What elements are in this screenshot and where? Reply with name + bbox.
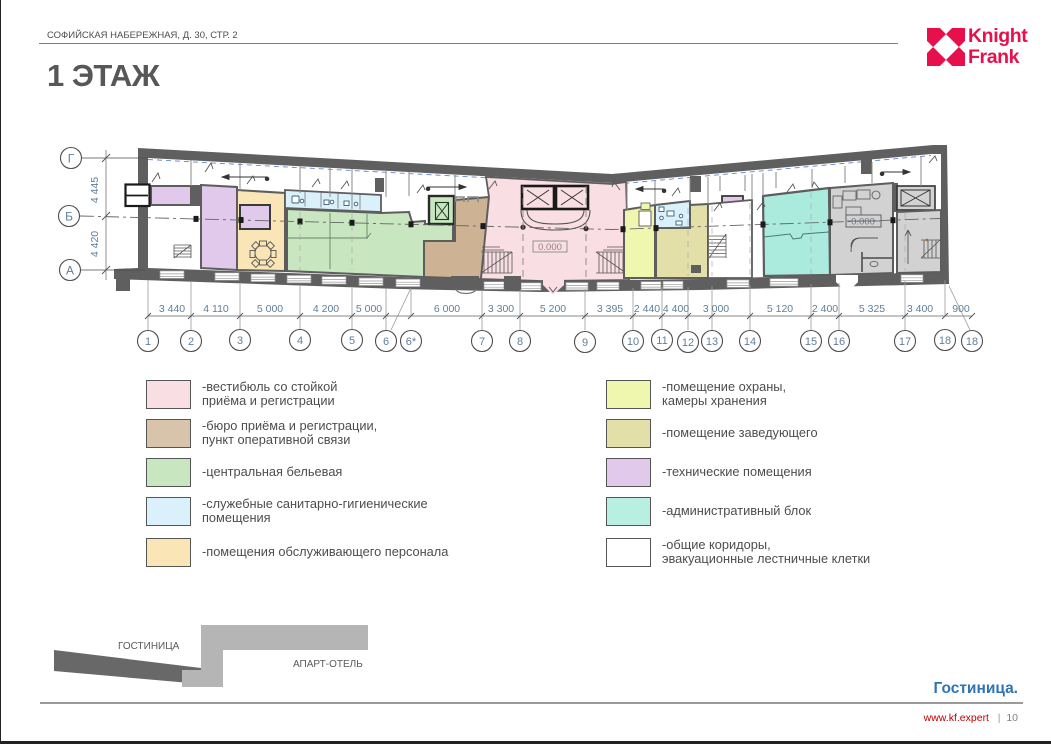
- svg-text:4 400: 4 400: [663, 303, 689, 315]
- svg-text:12: 12: [682, 337, 694, 349]
- svg-text:11: 11: [656, 335, 667, 347]
- svg-text:2 400: 2 400: [812, 303, 838, 315]
- svg-text:9: 9: [582, 337, 588, 349]
- svg-text:4 110: 4 110: [203, 303, 229, 315]
- svg-text:3 400: 3 400: [907, 303, 933, 315]
- svg-text:5 200: 5 200: [540, 303, 566, 315]
- svg-text:6: 6: [383, 336, 389, 348]
- svg-text:8: 8: [517, 336, 523, 348]
- svg-text:14: 14: [744, 336, 756, 348]
- svg-text:2: 2: [188, 336, 194, 348]
- svg-text:1: 1: [145, 336, 151, 348]
- svg-text:900: 900: [952, 303, 970, 315]
- svg-text:Г: Г: [68, 152, 75, 166]
- svg-text:5 000: 5 000: [356, 303, 382, 315]
- svg-text:7: 7: [479, 336, 485, 348]
- svg-text:18: 18: [939, 335, 951, 347]
- svg-text:4: 4: [297, 335, 303, 347]
- svg-text:5: 5: [349, 335, 355, 347]
- svg-text:15: 15: [805, 336, 817, 348]
- svg-text:6*: 6*: [406, 336, 417, 348]
- svg-text:18: 18: [966, 336, 978, 348]
- svg-text:6 000: 6 000: [434, 303, 460, 315]
- svg-text:16: 16: [833, 336, 845, 348]
- svg-text:17: 17: [899, 336, 911, 348]
- svg-text:13: 13: [706, 336, 718, 348]
- svg-text:3 440: 3 440: [159, 303, 185, 315]
- svg-text:3 300: 3 300: [488, 303, 514, 315]
- svg-text:0.000: 0.000: [538, 242, 562, 253]
- svg-text:3 000: 3 000: [703, 303, 729, 315]
- svg-text:3: 3: [237, 335, 243, 347]
- svg-text:А: А: [66, 264, 74, 278]
- svg-text:Б: Б: [65, 210, 73, 224]
- svg-text:10: 10: [627, 336, 639, 348]
- svg-text:2 440: 2 440: [634, 303, 660, 315]
- svg-text:4 200: 4 200: [313, 303, 339, 315]
- svg-text:0.000: 0.000: [851, 217, 875, 228]
- svg-text:5 120: 5 120: [767, 303, 793, 315]
- svg-text:4 445: 4 445: [89, 177, 101, 203]
- svg-text:5 000: 5 000: [257, 303, 283, 315]
- svg-text:4 420: 4 420: [89, 231, 101, 257]
- svg-text:3 395: 3 395: [597, 303, 623, 315]
- svg-text:5 325: 5 325: [859, 303, 885, 315]
